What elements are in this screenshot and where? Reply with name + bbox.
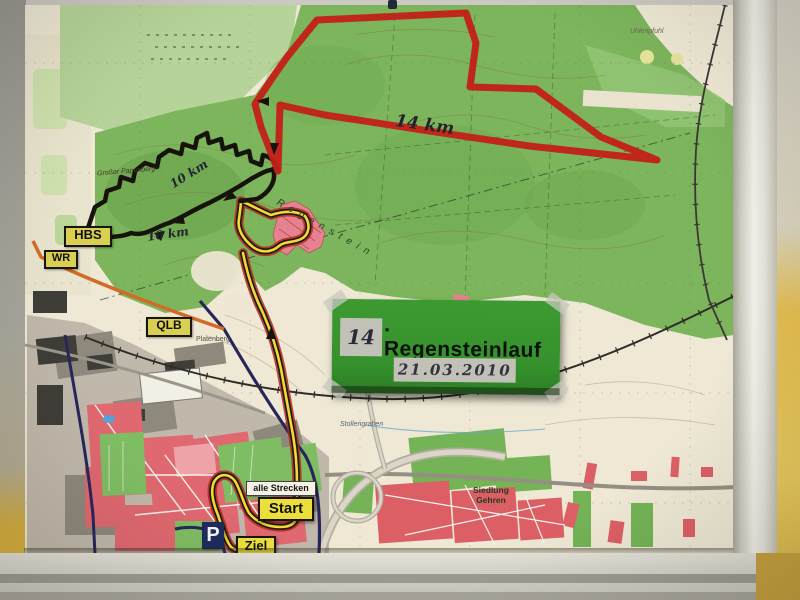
green-patch (41, 155, 67, 195)
siedlung-line2: Gehren (473, 495, 509, 505)
place-label-uhlenpfuhl: Uhlenpfuhl (630, 28, 663, 35)
siedlung-line1: Siedlung (473, 485, 509, 495)
road-sign-hbs: HBS (64, 226, 112, 247)
event-sign: 14 . Regensteinlauf 21.03.2010 (332, 299, 561, 395)
sign-edition-patch: 14 (340, 318, 382, 356)
place-label-platenberg: Platenberg (196, 336, 230, 343)
sand-area (223, 293, 255, 317)
pond-symbol (640, 50, 654, 64)
road-sign-wr: WR (44, 250, 78, 269)
sill-yellow-corner (756, 553, 800, 600)
map-artwork (25, 5, 736, 554)
all-courses-label: alle Strecken (246, 481, 316, 496)
wall-right-strip (777, 0, 800, 600)
rolled-paper-edge (733, 0, 779, 600)
road-sign-qlb: QLB (146, 317, 192, 337)
pushpin (388, 0, 397, 9)
wall-left-strip (0, 0, 26, 600)
sand-area (191, 251, 243, 291)
sign-date-patch: 21.03.2010 (394, 357, 516, 382)
place-label-stollengraben: Stollengraben (340, 421, 383, 428)
course-map: HBS WR QLB alle Strecken Start Ziel P 14… (25, 5, 736, 554)
sill-bottom-edge (0, 592, 778, 600)
photo-of-course-map: HBS WR QLB alle Strecken Start Ziel P 14… (0, 0, 800, 600)
parking-label: P (202, 522, 224, 549)
pond-symbol (671, 53, 683, 65)
place-label-siedlung-gehren: Siedlung Gehren (473, 485, 509, 505)
sill-groove (0, 574, 778, 583)
sign-title: . Regensteinlauf (384, 313, 555, 363)
start-label: Start (258, 497, 314, 521)
